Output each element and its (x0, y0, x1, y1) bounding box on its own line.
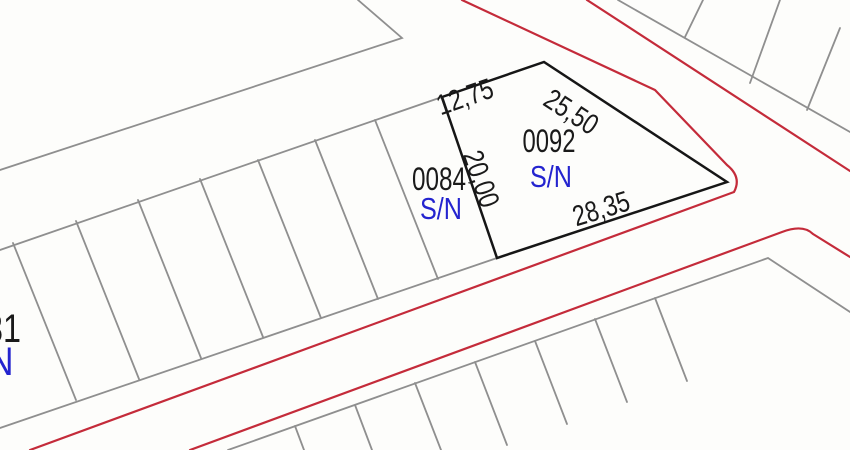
parcel-0084-status: S/N (420, 191, 462, 226)
map-canvas[interactable]: 0092 S/N 12,75 25,50 28,35 20,00 0084 S/… (0, 0, 850, 450)
cadastral-map: 0092 S/N 12,75 25,50 28,35 20,00 0084 S/… (0, 0, 850, 450)
parcel-0092-status: S/N (530, 159, 572, 194)
parcel-left-edge-status-partial: N (0, 340, 14, 384)
